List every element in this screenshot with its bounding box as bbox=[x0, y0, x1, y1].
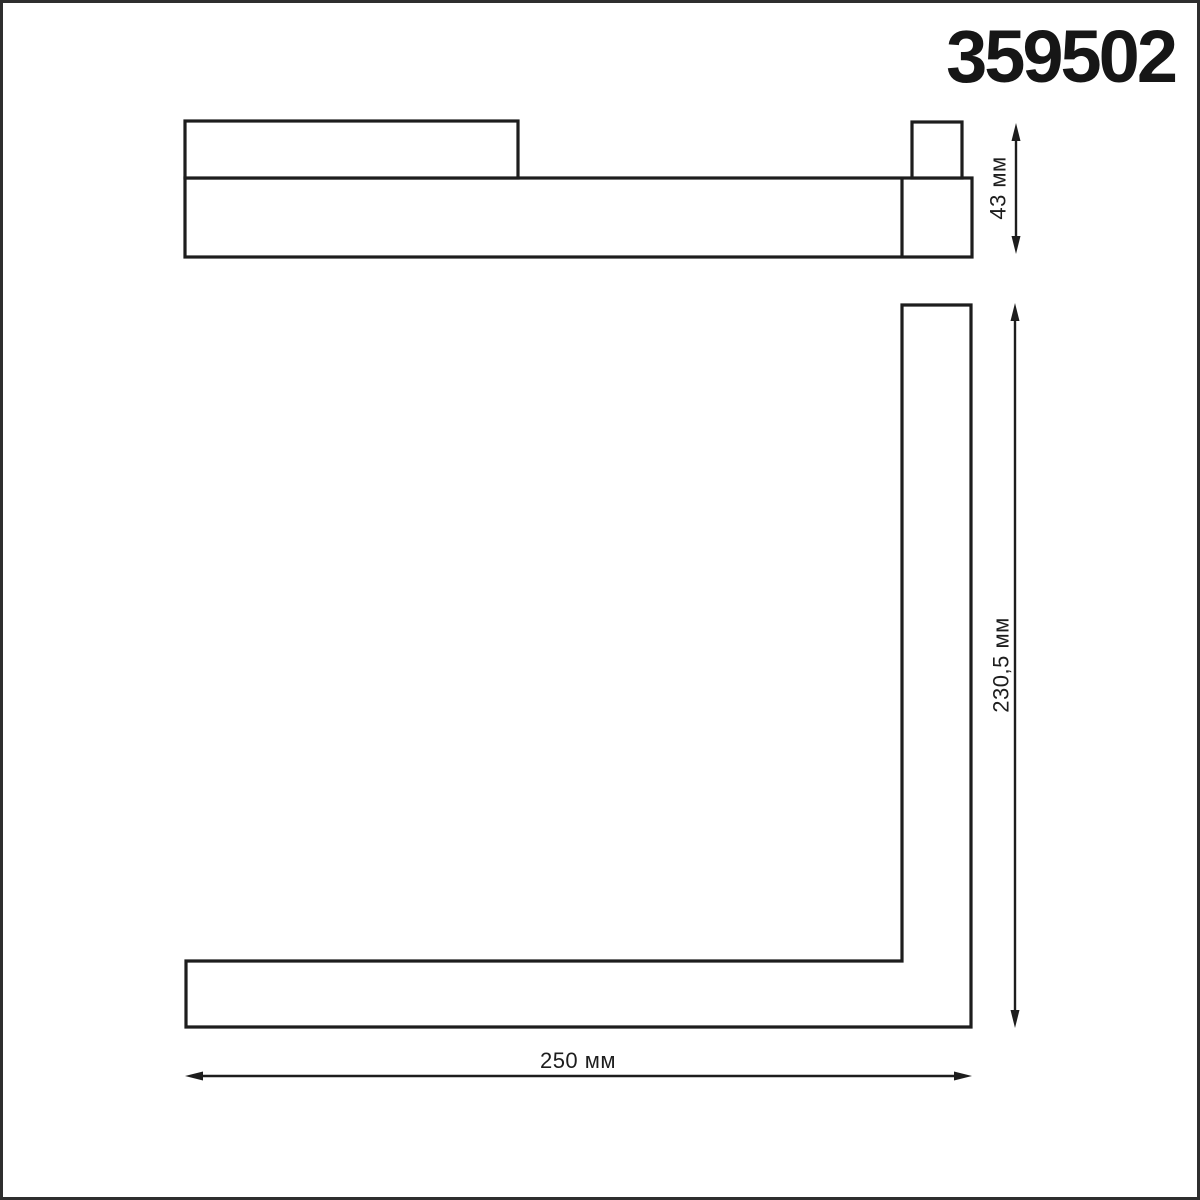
front-view bbox=[186, 305, 971, 1027]
dimension-front-height: 230,5 мм bbox=[989, 303, 1020, 1028]
dimension-front-width: 250 мм bbox=[185, 1048, 972, 1081]
dim-label-230mm: 230,5 мм bbox=[989, 617, 1014, 712]
dim-label-43mm: 43 мм bbox=[986, 156, 1011, 219]
technical-drawing-page: 359502 43 мм 230,5 мм bbox=[0, 0, 1200, 1200]
dim-arrow-left-icon bbox=[185, 1072, 203, 1081]
dim-arrow-right-icon bbox=[954, 1072, 972, 1081]
dim-arrow-down-icon bbox=[1011, 1010, 1020, 1028]
dim-arrow-up-icon bbox=[1012, 123, 1021, 141]
front-view-l-profile bbox=[186, 305, 971, 1027]
drawing-canvas: 43 мм 230,5 мм 250 мм bbox=[0, 0, 1200, 1200]
side-view-main-profile bbox=[185, 178, 972, 257]
side-view-top-plate bbox=[185, 121, 518, 178]
dim-arrow-up-icon bbox=[1011, 303, 1020, 321]
dim-arrow-down-icon bbox=[1012, 236, 1021, 254]
side-view bbox=[185, 121, 972, 257]
side-view-connector-block bbox=[912, 122, 962, 178]
dimension-side-height: 43 мм bbox=[986, 123, 1021, 254]
dim-label-250mm: 250 мм bbox=[540, 1048, 616, 1073]
